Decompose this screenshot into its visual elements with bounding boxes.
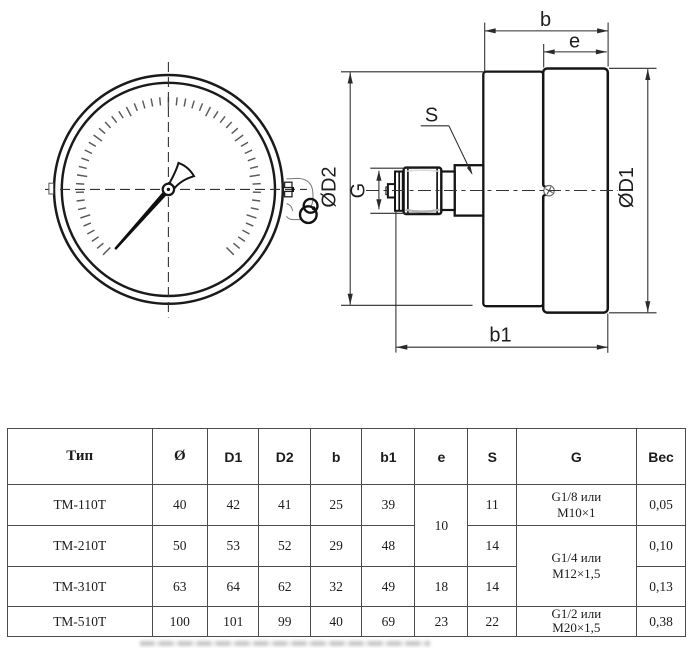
svg-text:ØD2: ØD2: [319, 166, 341, 207]
svg-text:b1: b1: [489, 325, 511, 347]
svg-text:e: e: [569, 31, 580, 53]
svg-text:ØD1: ØD1: [616, 167, 638, 208]
svg-text:G: G: [348, 183, 370, 199]
svg-text:b: b: [540, 9, 551, 31]
svg-text:S: S: [425, 105, 438, 127]
